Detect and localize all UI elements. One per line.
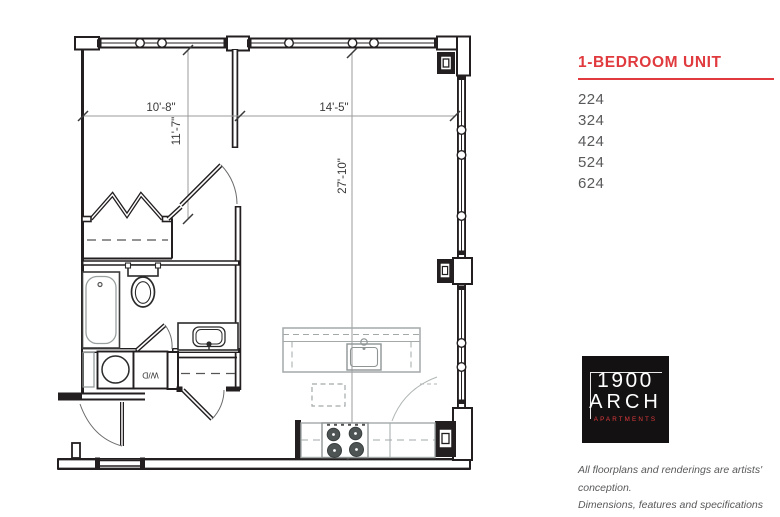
- unit-number-list: 224 324 424 524 624: [578, 89, 774, 194]
- disclaimer-line: Dimensions, features and specifications …: [578, 497, 778, 517]
- disclaimer-text: All floorplans and renderings are artist…: [578, 462, 778, 517]
- logo-line-arch: ARCH: [582, 392, 669, 413]
- page-title: 1-BEDROOM UNIT: [578, 54, 774, 72]
- bathroom: [83, 263, 239, 350]
- unit-number: 324: [578, 110, 774, 131]
- sink-vanity: [178, 323, 238, 350]
- dishwasher: [312, 384, 345, 406]
- stove: [322, 423, 368, 458]
- toilet: [126, 263, 161, 307]
- unit-number: 224: [578, 89, 774, 110]
- pantry-door: [392, 377, 437, 421]
- title-underline: [578, 78, 774, 80]
- logo-line-apartments: APARTMENTS: [582, 416, 669, 423]
- dim-bedroom-depth: 11'-7": [171, 117, 183, 145]
- logo-line-1900: 1900: [582, 370, 669, 392]
- bedroom-door: [168, 165, 237, 219]
- dim-living-width: 14'-5": [319, 102, 348, 114]
- dim-living-depth: 27'-10": [337, 158, 349, 194]
- bathroom-door: [137, 325, 172, 350]
- unit-number: 424: [578, 131, 774, 152]
- washer-dryer-label: W/D: [142, 371, 159, 381]
- bedroom-closet: [82, 195, 172, 259]
- unit-number: 524: [578, 152, 774, 173]
- floorplan-page: 10'-8" 14'-5" 11'-7" 27'-10": [0, 0, 780, 517]
- exterior-walls: [58, 43, 470, 470]
- structural-columns: [435, 37, 472, 461]
- unit-number: 624: [578, 173, 774, 194]
- disclaimer-line: All floorplans and renderings are artist…: [578, 462, 778, 497]
- bathtub: [83, 272, 120, 348]
- building-logo: 1900 ARCH APARTMENTS: [582, 356, 669, 443]
- unit-info-panel: 1-BEDROOM UNIT 224 324 424 524 624: [578, 54, 774, 194]
- washer-dryer: W/D: [83, 352, 168, 389]
- kitchen: [283, 328, 437, 458]
- dim-bedroom-width: 10'-8": [146, 102, 175, 114]
